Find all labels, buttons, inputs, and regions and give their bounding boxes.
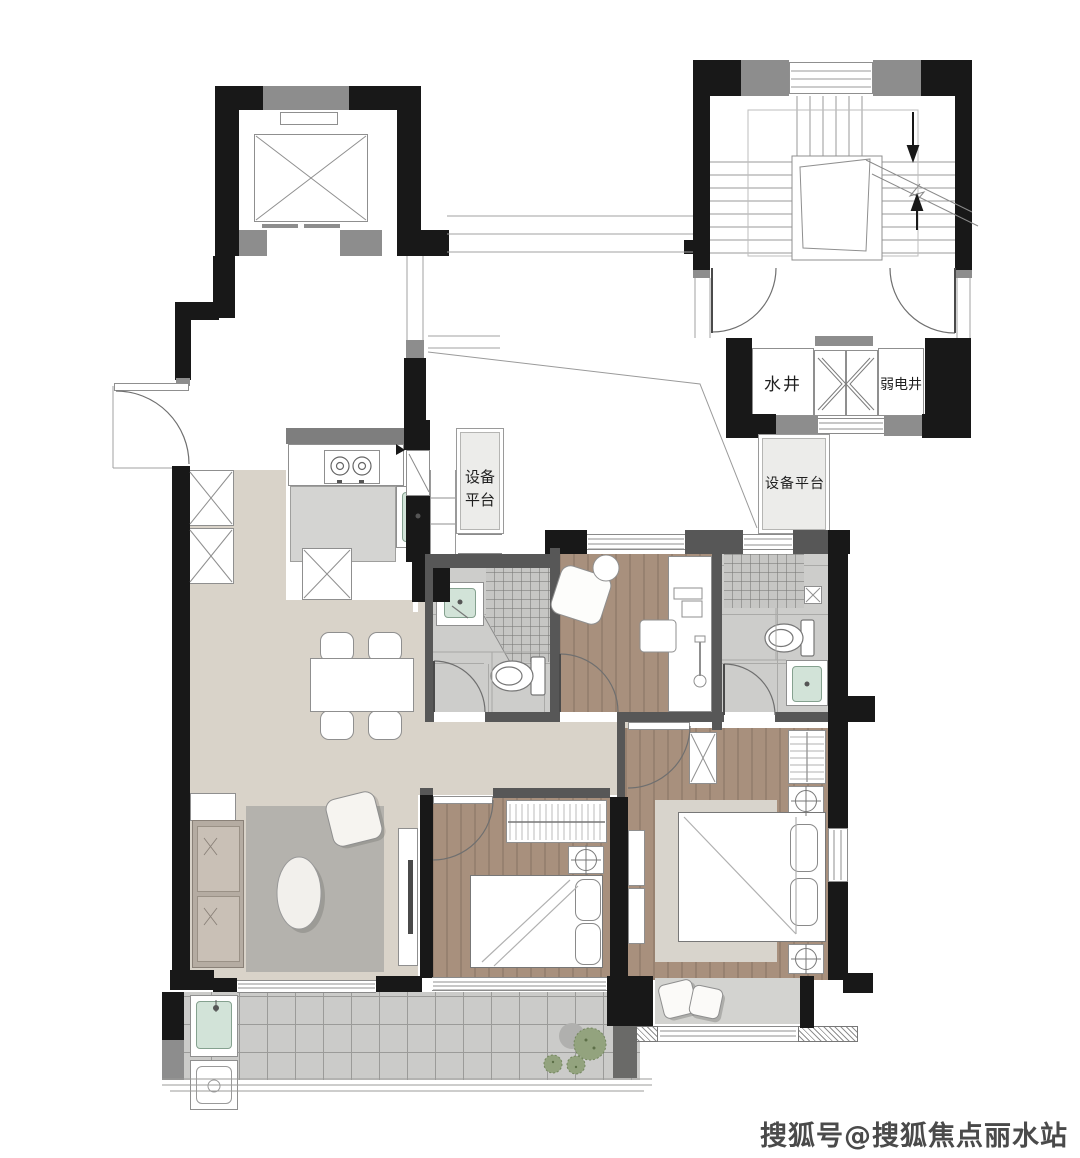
stair-direction-arrows [908,112,922,230]
coffee-table [277,857,325,933]
balcony-railing [162,1079,652,1091]
label-weak-electric-shaft: 弱电井 [875,375,927,393]
window-lines [238,423,883,1036]
bay-seat-pillows [657,978,726,1024]
cabinet-x-symbols [190,472,820,782]
shower-corner [484,614,512,664]
wardrobe-hangers [508,804,605,840]
label-equipment-platform-left: 设备 平台 [458,466,502,526]
kitchen-window-leaf [396,444,429,492]
plan-linework [0,0,1080,1158]
louver-door-chevrons [818,358,874,410]
sofa-pillow-decor [204,838,217,925]
stove-burners [331,457,371,483]
study-furniture [549,555,706,687]
plant-icons [544,1023,606,1074]
staircase [710,71,978,260]
label-water-shaft: 水井 [752,372,814,394]
washing-machine-drum [208,1080,220,1092]
bed-sheet-lines [482,817,796,966]
dresser-drawers [790,732,824,782]
faucet-icons [213,514,810,1013]
elevator-car-x [256,136,366,220]
door-swings [116,268,955,860]
accent-chair [324,789,388,851]
table-lamp-symbols [571,786,821,974]
floor-plan-canvas: 水井 弱电井 设备 平台 设备平台 搜狐号@搜狐焦点丽水站 [0,0,1080,1158]
label-equipment-platform-left-line1: 设备 [458,466,502,489]
watermark: 搜狐号@搜狐焦点丽水站 [760,1114,1068,1153]
label-equipment-platform-right: 设备平台 [760,474,830,492]
label-equipment-platform-left-line2: 平台 [458,489,502,512]
